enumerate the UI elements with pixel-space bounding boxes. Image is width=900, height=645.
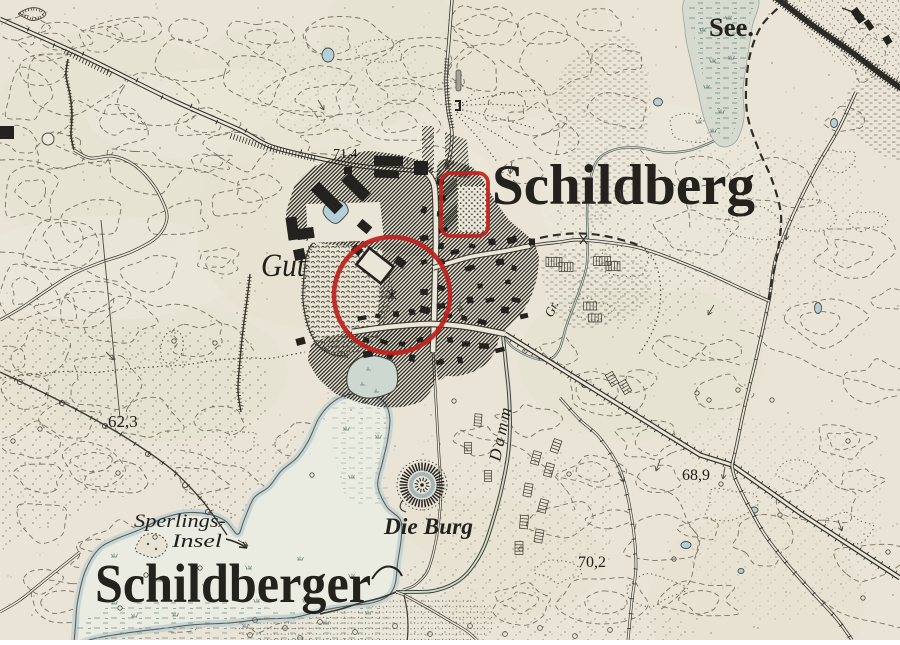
svg-text:62,3: 62,3 [108, 412, 138, 431]
svg-text:Schildberg: Schildberg [492, 154, 755, 217]
svg-text:Schildberger: Schildberger [95, 553, 371, 614]
svg-text:71,4: 71,4 [333, 147, 358, 162]
svg-text:See.: See. [709, 13, 754, 42]
svg-text:Die Burg: Die Burg [383, 514, 473, 539]
svg-text:Insel: Insel [171, 531, 222, 552]
svg-text:Sperlings-: Sperlings- [134, 511, 226, 532]
svg-text:Gut: Gut [261, 248, 306, 284]
svg-text:68,9: 68,9 [682, 467, 710, 484]
svg-text:70,2: 70,2 [578, 554, 606, 571]
